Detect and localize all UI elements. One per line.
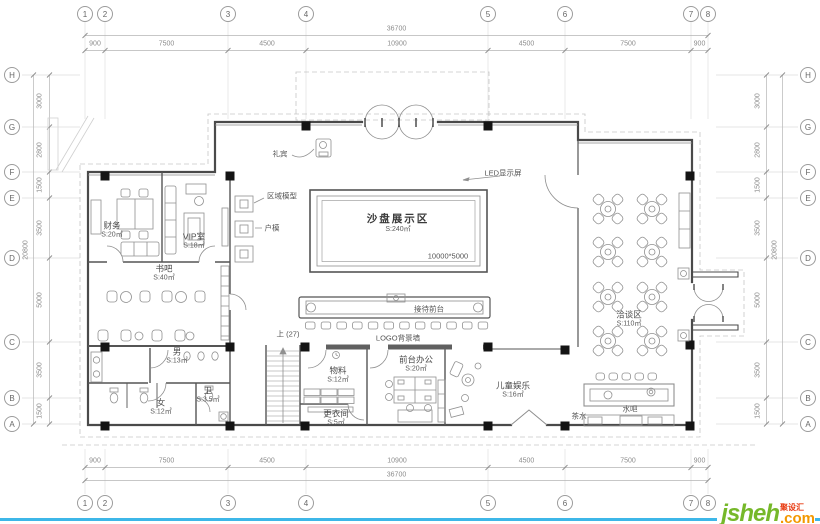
footer-divider-line: [0, 518, 820, 521]
logo-text: jsheh: [721, 503, 779, 524]
floor-plan-screenshot: 1122334455667788HHGGFFEEDDCCBBAA90075004…: [0, 0, 820, 524]
partitions: [88, 140, 578, 425]
grid-and-dimension-lines: [22, 22, 798, 494]
logo-tld: .com: [780, 512, 815, 524]
walls: [88, 122, 738, 425]
floor-plan-drawing: [0, 0, 820, 524]
site-watermark-logo: jsheh 聚设汇 .com: [717, 503, 815, 524]
glazing-lines: [88, 125, 692, 175]
